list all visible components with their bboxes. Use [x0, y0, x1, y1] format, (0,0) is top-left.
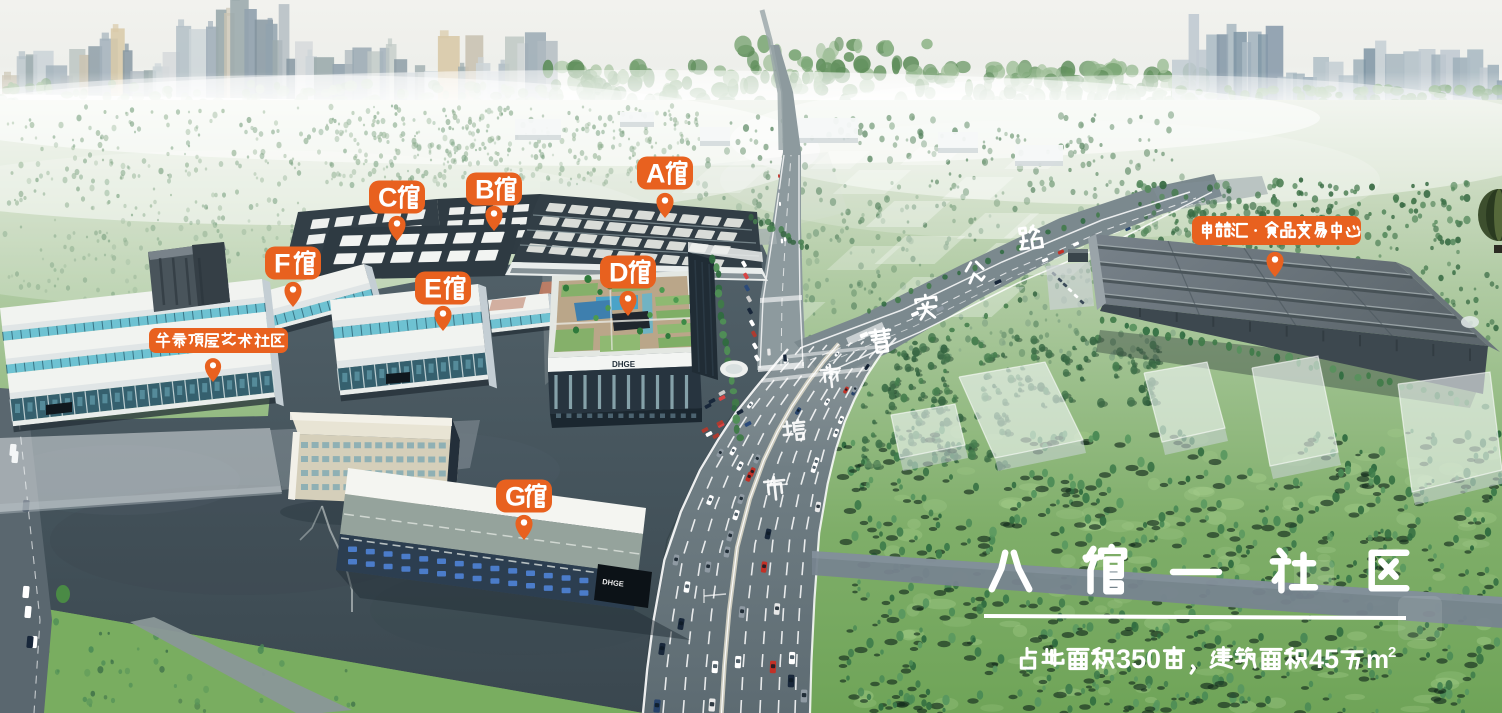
svg-text:m: m: [1366, 644, 1389, 674]
svg-text:A: A: [646, 159, 666, 189]
svg-text:350: 350: [1116, 644, 1161, 674]
svg-text:B: B: [475, 175, 495, 205]
svg-text:F: F: [274, 249, 291, 279]
svg-text:45: 45: [1309, 644, 1339, 674]
svg-text:E: E: [424, 274, 442, 304]
svg-text:2: 2: [1388, 644, 1396, 661]
svg-text:DHGE: DHGE: [612, 360, 636, 369]
svg-text:G: G: [505, 482, 526, 512]
svg-text:C: C: [378, 183, 398, 213]
svg-text:D: D: [609, 258, 629, 288]
